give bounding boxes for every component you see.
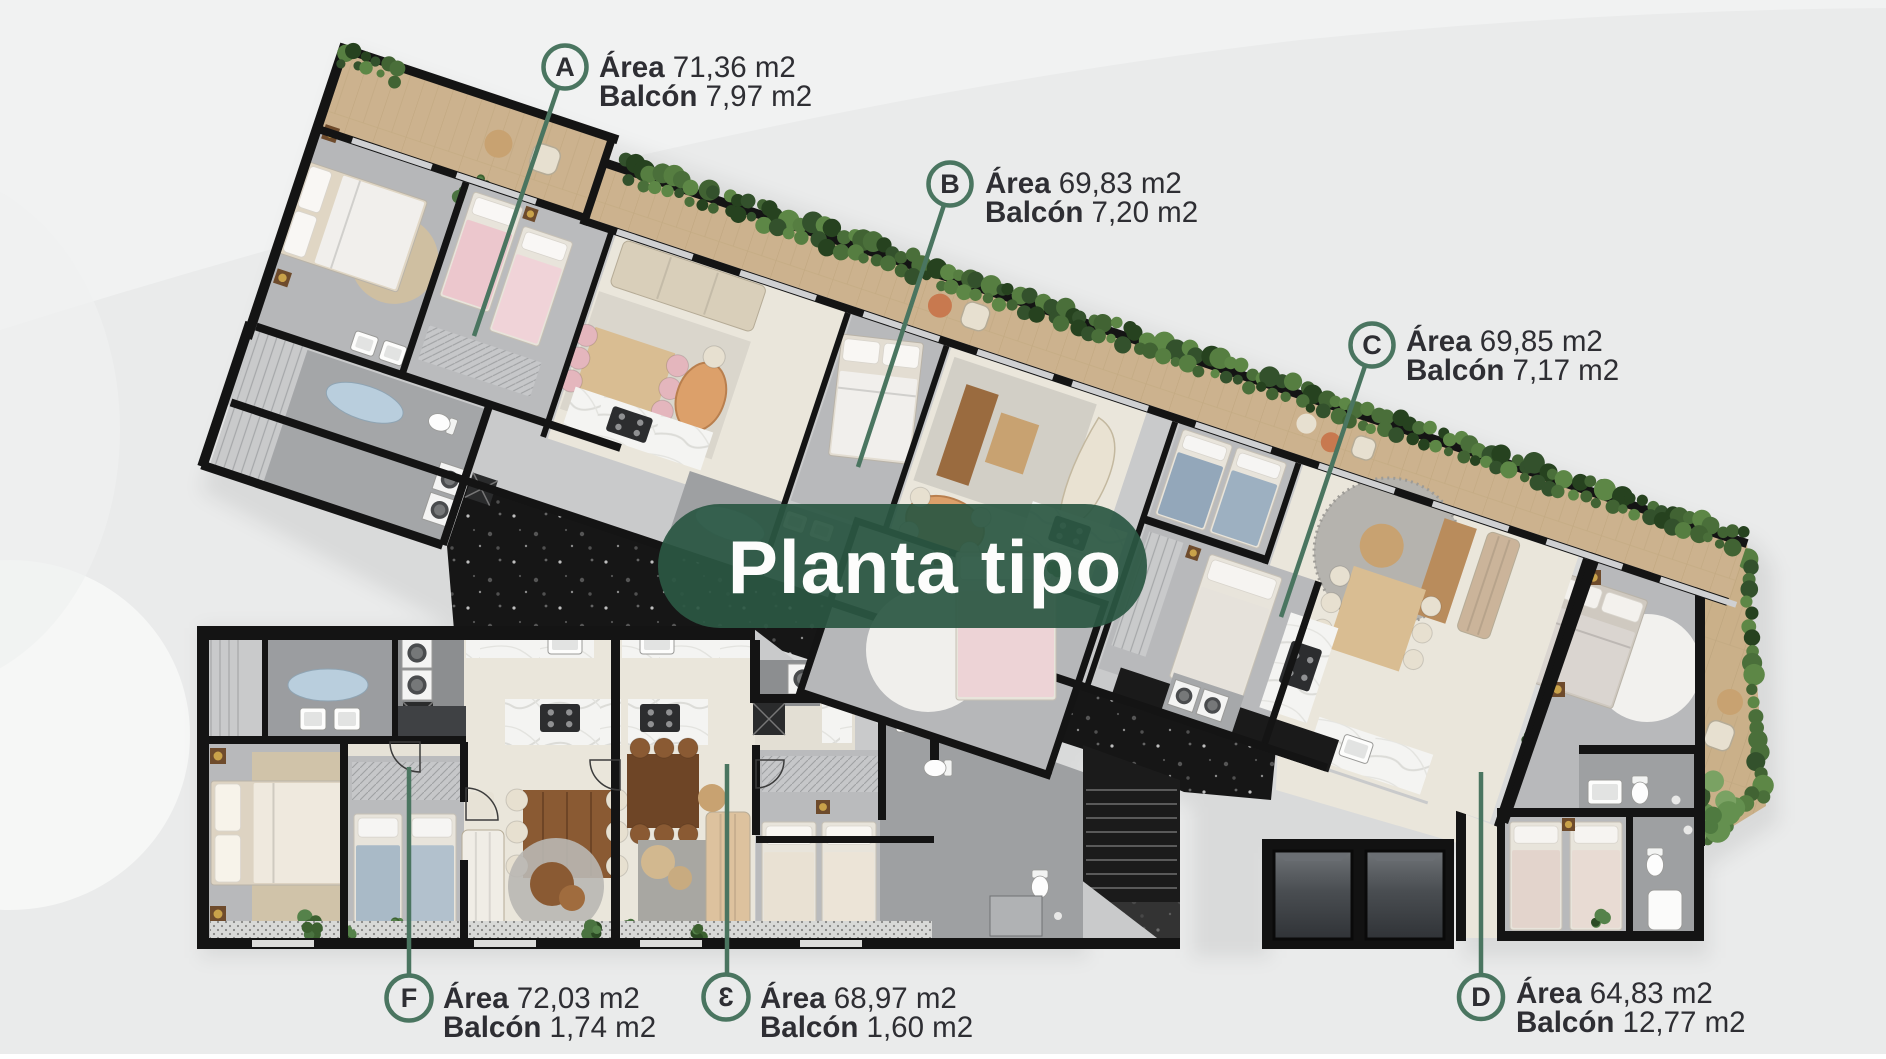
svg-text:Área 69,83 m2: Área 69,83 m2 [985, 166, 1182, 200]
svg-text:Balcón 1,74 m2: Balcón 1,74 m2 [443, 1011, 656, 1044]
svg-text:Área 68,97 m2: Área 68,97 m2 [760, 981, 957, 1015]
svg-text:A: A [555, 52, 575, 82]
svg-text:Área 71,36 m2: Área 71,36 m2 [599, 50, 796, 84]
svg-text:Balcón 7,20 m2: Balcón 7,20 m2 [985, 196, 1198, 229]
svg-text:Balcón 12,77 m2: Balcón 12,77 m2 [1516, 1006, 1746, 1039]
svg-text:D: D [1471, 982, 1491, 1012]
svg-text:Balcón 7,17 m2: Balcón 7,17 m2 [1406, 354, 1619, 387]
svg-text:C: C [1362, 330, 1382, 360]
svg-text:Planta tipo: Planta tipo [728, 525, 1122, 609]
svg-text:B: B [940, 169, 960, 199]
svg-text:Área 72,03 m2: Área 72,03 m2 [443, 981, 640, 1015]
svg-text:Balcón 7,97 m2: Balcón 7,97 m2 [599, 80, 812, 113]
svg-text:Balcón 1,60 m2: Balcón 1,60 m2 [760, 1011, 973, 1044]
svg-text:Área 69,85 m2: Área 69,85 m2 [1406, 324, 1603, 358]
svg-text:3: 3 [718, 982, 733, 1012]
svg-text:F: F [401, 983, 418, 1013]
svg-text:Área 64,83 m2: Área 64,83 m2 [1516, 976, 1713, 1010]
